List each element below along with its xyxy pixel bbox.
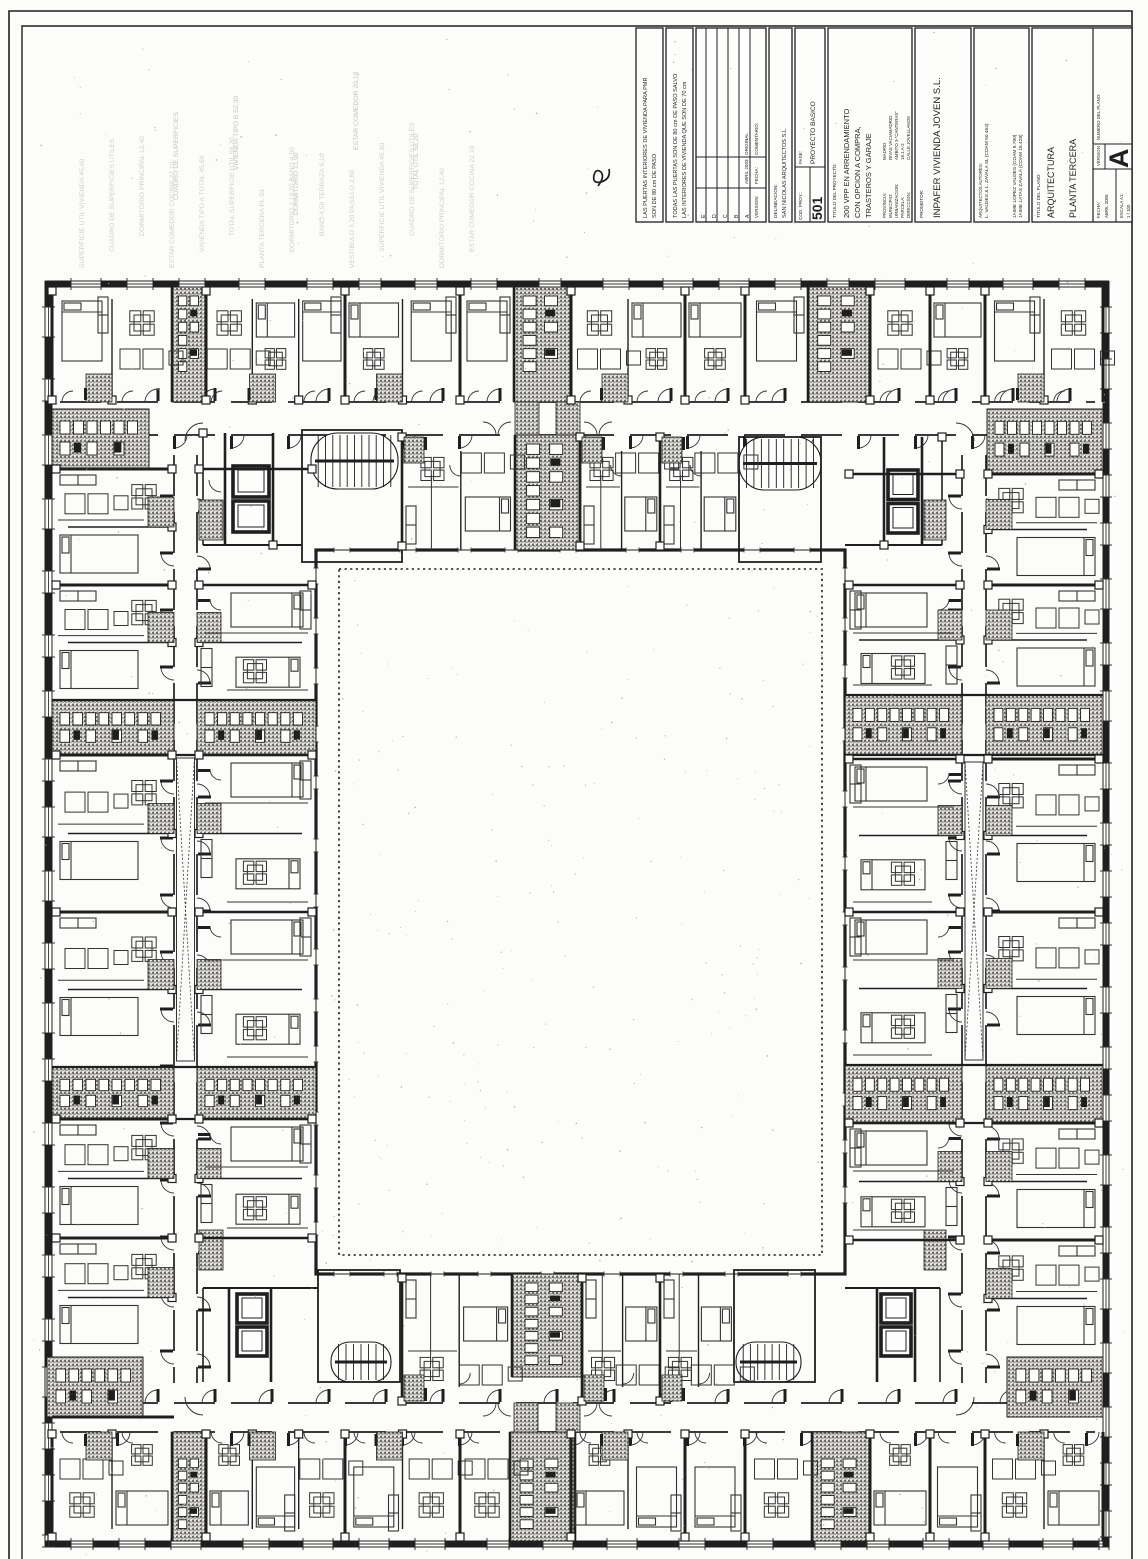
svg-text:C: C	[723, 214, 729, 218]
svg-text:VERSION:: VERSION:	[754, 196, 759, 218]
svg-text:TITULO DEL PLANO:: TITULO DEL PLANO:	[1036, 173, 1041, 218]
svg-text:501: 501	[809, 196, 825, 220]
svg-text:SUPERFICIE UTIL VIVIENDA 45,60: SUPERFICIE UTIL VIVIENDA 45,60	[79, 158, 86, 268]
svg-text:BANO 4,50 TERRAZA 6,10: BANO 4,50 TERRAZA 6,10	[319, 153, 326, 236]
svg-text:PLANTA TERCERA PL 03: PLANTA TERCERA PL 03	[259, 189, 266, 268]
svg-text:ARQUITECTURA: ARQUITECTURA	[1046, 147, 1056, 218]
svg-text:TODAS LAS PUERTAS SON DE 80 cm: TODAS LAS PUERTAS SON DE 80 cm DE PASO S…	[673, 73, 679, 218]
svg-text:JAIME LOPEZ VALDES (COAM 9.790: JAIME LOPEZ VALDES (COAM 9.790)	[1012, 134, 1018, 218]
svg-text:ESTAR COMEDOR COCINA 22,10: ESTAR COMEDOR COCINA 22,10	[469, 145, 476, 252]
svg-text:PROMOTOR:: PROMOTOR:	[919, 190, 924, 218]
svg-text:PROVINCIA:: PROVINCIA:	[882, 193, 887, 218]
svg-text:FECHA:: FECHA:	[1096, 202, 1101, 218]
svg-text:A: A	[745, 214, 751, 218]
svg-text:SAN NICOLAS ARQUITECTOS S.L.: SAN NICOLAS ARQUITECTOS S.L.	[782, 127, 788, 218]
svg-text:TOTAL UTIL 58,20: TOTAL UTIL 58,20	[413, 133, 420, 190]
svg-text:PARCELA:: PARCELA:	[900, 197, 905, 218]
svg-text:SON DE 80 cm DE PASO: SON DE 80 cm DE PASO	[652, 153, 658, 218]
svg-text:CUADRO DE SUPERFICIES UTILES: CUADRO DE SUPERFICIES UTILES	[109, 138, 116, 252]
svg-text:VERSION: VERSION	[1096, 146, 1101, 166]
svg-text:SUPERFICIE UTIL VIVIENDA 45,60: SUPERFICIE UTIL VIVIENDA 45,60	[379, 142, 386, 252]
svg-text:18.1.A-2: 18.1.A-2	[900, 143, 905, 160]
svg-text:AMBITO 3-“CANTERAS”: AMBITO 3-“CANTERAS”	[894, 111, 899, 160]
svg-text:ORIGINAL: ORIGINAL	[744, 133, 749, 155]
svg-text:200 VPP EN ARRENDAMIENTO: 200 VPP EN ARRENDAMIENTO	[842, 108, 851, 218]
svg-text:DIRECCION:: DIRECCION:	[906, 192, 911, 218]
svg-text:FECHA:: FECHA:	[754, 167, 759, 184]
svg-text:PLANTA TERCERA: PLANTA TERCERA	[1068, 139, 1078, 218]
svg-text:A: A	[1104, 149, 1134, 169]
svg-text:CUADRO DE SUPERFICIES: CUADRO DE SUPERFICIES	[173, 112, 180, 200]
svg-text:D: D	[712, 214, 718, 218]
svg-text:NUMERO DEL PLANO:: NUMERO DEL PLANO:	[1096, 94, 1101, 140]
svg-text:DORMITORIO PRINCIPAL 12,40: DORMITORIO PRINCIPAL 12,40	[139, 136, 146, 236]
svg-text:COD. PROY.:: COD. PROY.:	[798, 192, 803, 220]
svg-text:1 / 100: 1 / 100	[1126, 204, 1131, 218]
svg-text:DORMITORIO PRINCIPAL 12,40: DORMITORIO PRINCIPAL 12,40	[439, 168, 446, 268]
svg-text:COMENTARIO:: COMENTARIO:	[754, 123, 759, 155]
svg-text:DELINEACION:: DELINEACION:	[773, 184, 779, 218]
svg-text:JAIME LATAS ZAVALA (COAM 16.42: JAIME LATAS ZAVALA (COAM 16.428)	[1018, 134, 1024, 218]
svg-text:ESCALA A1:: ESCALA A1:	[1119, 193, 1124, 218]
svg-text:L. VALDES & L. ZAVALA SL (COAM: L. VALDES & L. ZAVALA SL (COAM 50.464)	[984, 123, 990, 218]
svg-text:CON OPCION A COMPRA,: CON OPCION A COMPRA,	[853, 126, 862, 218]
svg-text:DORMITORIO 11,90: DORMITORIO 11,90	[293, 152, 300, 215]
svg-text:VIVIENDA TIPO B 52,30: VIVIENDA TIPO B 52,30	[233, 95, 240, 170]
svg-text:FASE:: FASE:	[798, 151, 803, 164]
svg-text:LAS INTERIORES DE VIVIENDA QUE: LAS INTERIORES DE VIVIENDA QUE SON DE 70…	[682, 81, 688, 218]
svg-text:ABRIL 2003: ABRIL 2003	[744, 159, 749, 184]
svg-text:B: B	[734, 214, 740, 218]
svg-text:TITULO DEL PROYECTO:: TITULO DEL PROYECTO:	[832, 163, 837, 218]
svg-text:E: E	[701, 214, 707, 218]
svg-text:LAS PUERTAS INTERIORES DE VIVI: LAS PUERTAS INTERIORES DE VIVIENDA PARA …	[643, 77, 649, 218]
svg-text:MADRID: MADRID	[882, 143, 887, 160]
svg-text:INPAFER VIVIENDA JOVEN S.L.: INPAFER VIVIENDA JOVEN S.L.	[932, 77, 943, 218]
svg-text:MUNICIPIO:: MUNICIPIO:	[888, 194, 893, 218]
svg-text:VIVIENDA TIPO A TOTAL 45,60: VIVIENDA TIPO A TOTAL 45,60	[199, 155, 206, 252]
svg-text:TRASTEROS Y GARAJE: TRASTEROS Y GARAJE	[864, 133, 873, 218]
svg-text:ABRIL 2005: ABRIL 2005	[1104, 194, 1109, 218]
svg-text:ARQUITECTOS AUTORES:: ARQUITECTOS AUTORES:	[978, 163, 983, 218]
svg-text:CALLE JOVELLANOS: CALLE JOVELLANOS	[906, 116, 911, 160]
svg-text:RIVAS VACIAMADRID: RIVAS VACIAMADRID	[888, 116, 893, 160]
svg-text:ESTAR COMEDOR 20,10: ESTAR COMEDOR 20,10	[353, 71, 360, 150]
svg-text:URBANIZACION:: URBANIZACION:	[894, 184, 899, 218]
svg-text:PROYECTO BASICO: PROYECTO BASICO	[810, 101, 817, 164]
svg-text:VESTIBULO 3,20 PASILLO 2,80: VESTIBULO 3,20 PASILLO 2,80	[349, 170, 356, 268]
